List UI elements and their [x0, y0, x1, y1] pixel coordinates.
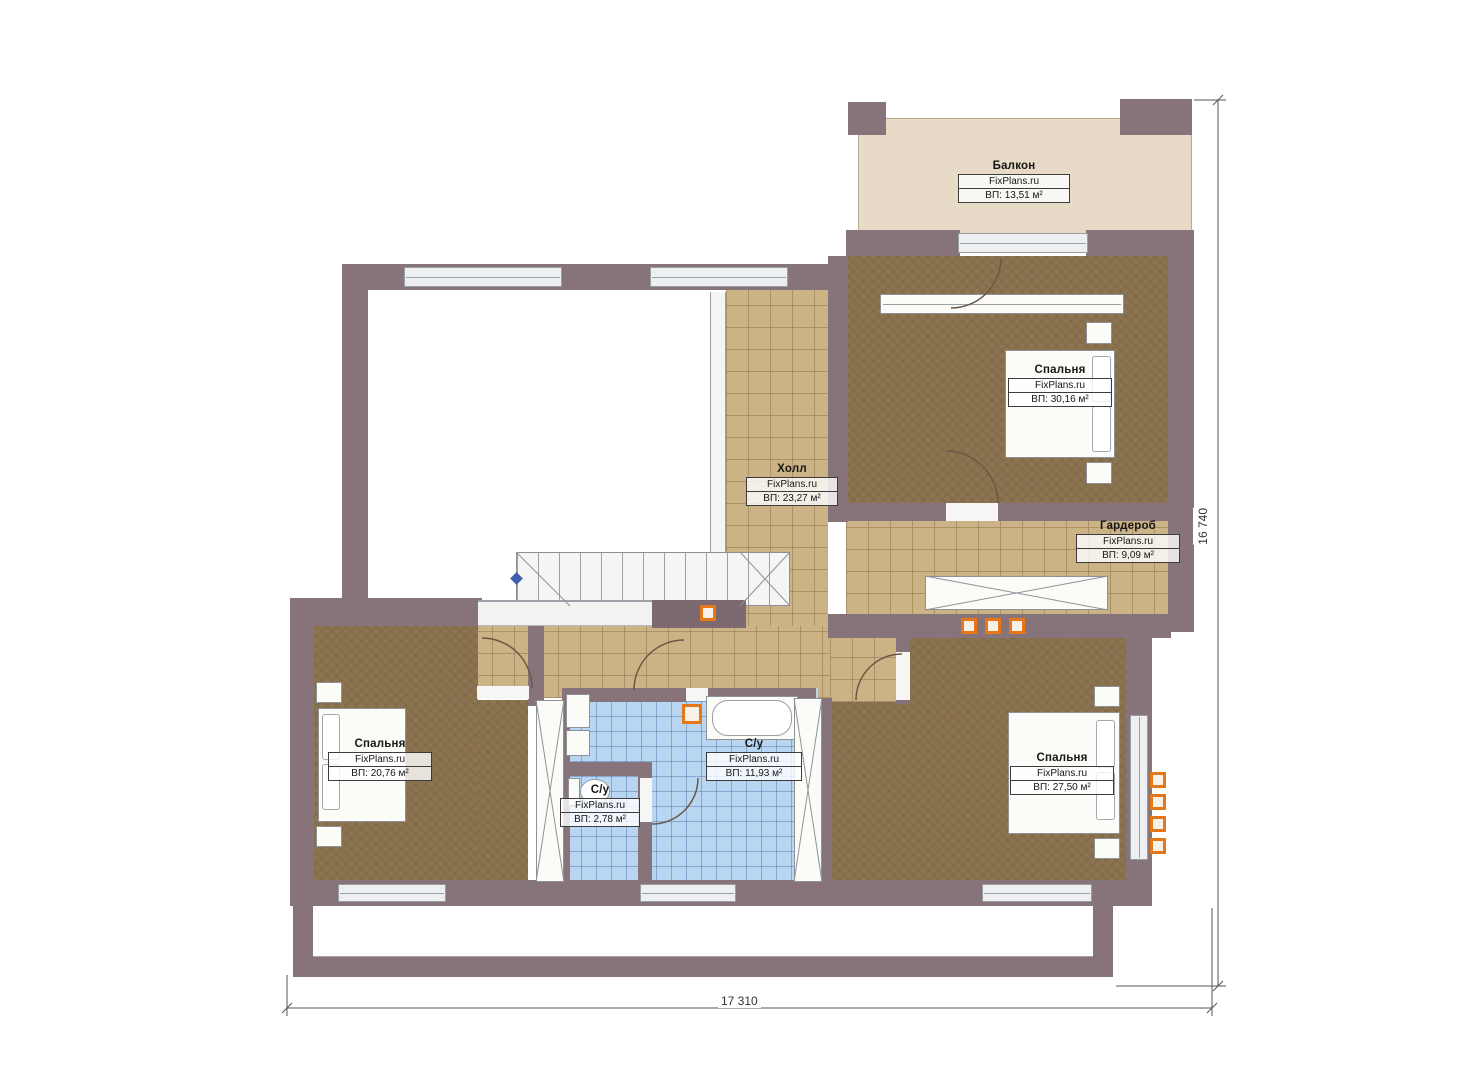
accent-square-wardrobe-1 [961, 618, 977, 634]
pillow [1092, 406, 1111, 452]
room-bedroom-right-entry-floor [830, 636, 896, 702]
vanity [566, 694, 590, 728]
wall-bedroom-left-top [290, 598, 482, 626]
room-label-wardrobe: Гардероб FixPlans.ru ВП: 9,09 м² [1076, 520, 1180, 563]
wardrobe-cabinet [925, 576, 1108, 610]
room-label-bath-small: С/у FixPlans.ru ВП: 2,78 м² [560, 784, 640, 827]
room-label-bedroom-top: Спальня FixPlans.ru ВП: 30,16 м² [1008, 364, 1112, 407]
nightstand [316, 682, 342, 703]
window-bottom-3 [982, 884, 1092, 902]
room-name: С/у [560, 784, 640, 796]
accent-square-wardrobe-2 [985, 618, 1001, 634]
nightstand [316, 826, 342, 847]
brand-watermark: FixPlans.ru [561, 799, 639, 813]
room-area: ВП: 27,50 м² [1011, 781, 1113, 794]
door-threshold-bedroom-left [477, 686, 529, 699]
wall-balcony-bottom-left [846, 230, 960, 256]
brand-watermark: FixPlans.ru [747, 478, 837, 492]
room-label-balcony: Балкон FixPlans.ru ВП: 13,51 м² [958, 160, 1070, 203]
room-area: ВП: 13,51 м² [959, 189, 1069, 202]
room-label-bedroom-right: Спальня FixPlans.ru ВП: 27,50 м² [1010, 752, 1114, 795]
brand-watermark: FixPlans.ru [1009, 379, 1111, 393]
window-right-bedroom [1130, 715, 1148, 860]
floor-plan: Балкон FixPlans.ru ВП: 13,51 м² Спальня … [0, 0, 1474, 1080]
room-area: ВП: 23,27 м² [747, 492, 837, 505]
room-area: ВП: 20,76 м² [329, 767, 431, 780]
shower-drain [682, 704, 702, 724]
room-area: ВП: 30,16 м² [1009, 393, 1111, 406]
room-area: ВП: 9,09 м² [1077, 549, 1179, 562]
window-balcony-door [958, 233, 1088, 253]
wall-balcony-block [1120, 99, 1192, 135]
room-area: ВП: 2,78 м² [561, 813, 639, 826]
accent-square-right-2 [1150, 794, 1166, 810]
wall-bath-small-top [564, 762, 646, 776]
room-name: Спальня [1008, 364, 1112, 376]
accent-square-right-3 [1150, 816, 1166, 832]
wall-balcony-stub [848, 102, 886, 135]
door-opening-bedroom-top [946, 503, 998, 521]
wall-left-upper [342, 264, 368, 604]
vanity [566, 730, 590, 756]
brand-watermark: FixPlans.ru [707, 753, 801, 767]
terrace-inner [313, 902, 1093, 957]
room-name: Балкон [958, 160, 1070, 172]
room-name: Гардероб [1076, 520, 1180, 532]
wall-bedroom-top-bottom [846, 503, 1171, 521]
stairs [516, 552, 790, 606]
bathtub-basin [712, 700, 792, 736]
room-bedroom-left-floor2 [478, 700, 528, 882]
nightstand [1086, 322, 1112, 344]
nightstand [1086, 462, 1112, 484]
brand-watermark: FixPlans.ru [1077, 535, 1179, 549]
door-opening-bath-small [640, 778, 652, 822]
dimension-width: 17 310 [718, 994, 761, 1008]
tall-cabinet-right [794, 698, 822, 882]
wall-bedroom-left-right [528, 626, 544, 706]
wall-right-upper [1168, 230, 1194, 632]
room-label-bedroom-left: Спальня FixPlans.ru ВП: 20,76 м² [328, 738, 432, 781]
brand-watermark: FixPlans.ru [959, 175, 1069, 189]
accent-square-right-4 [1150, 838, 1166, 854]
accent-square-wardrobe-3 [1009, 618, 1025, 634]
door-threshold-bath [686, 688, 708, 701]
door-leaf-bedroom-right [896, 652, 910, 700]
accent-square-right-1 [1150, 772, 1166, 788]
closet [880, 294, 1124, 314]
nightstand [1094, 686, 1120, 707]
wall-stair-block [652, 600, 746, 628]
room-name: Спальня [328, 738, 432, 750]
dimension-height: 16 740 [1193, 508, 1213, 545]
window-bottom-2 [640, 884, 736, 902]
brand-watermark: FixPlans.ru [1011, 767, 1113, 781]
wall-left-lower [290, 598, 314, 906]
nightstand [1094, 838, 1120, 859]
window-bottom-1 [338, 884, 446, 902]
brand-watermark: FixPlans.ru [329, 753, 431, 767]
accent-square-stair [700, 605, 716, 621]
window-top-2 [650, 267, 788, 287]
window-top-1 [404, 267, 562, 287]
room-name: С/у [706, 738, 802, 750]
stair-landing [478, 600, 652, 626]
room-name: Холл [746, 463, 838, 475]
room-name: Спальня [1010, 752, 1114, 764]
room-label-hall: Холл FixPlans.ru ВП: 23,27 м² [746, 463, 838, 506]
room-area: ВП: 11,93 м² [707, 767, 801, 780]
room-label-bath-large: С/у FixPlans.ru ВП: 11,93 м² [706, 738, 802, 781]
